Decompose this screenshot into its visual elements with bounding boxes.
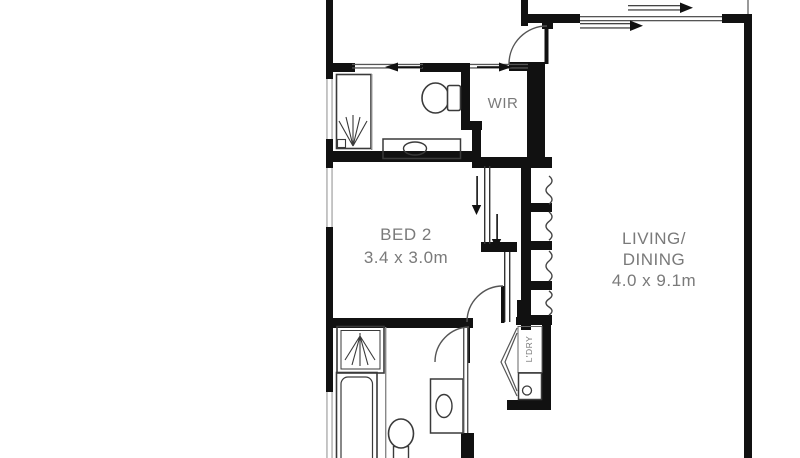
laundry-label: L'DRY — [524, 329, 536, 369]
balcony-slider-icon — [580, 3, 722, 32]
bed2-name: BED 2 — [330, 223, 482, 246]
bathtub-icon — [337, 373, 378, 458]
bathroom2-fixtures — [337, 327, 469, 458]
living-dining-label: LIVING/ DINING 4.0 x 9.1m — [572, 228, 736, 291]
bathroom-slider-icon — [352, 63, 423, 72]
floor-plan: BED 2 3.4 x 3.0m LIVING/ DINING 4.0 x 9.… — [0, 0, 800, 458]
toilet2-icon — [389, 419, 414, 458]
passage-thin-wall — [463, 328, 464, 433]
toilet-icon — [422, 83, 461, 113]
bathroom2-door-icon — [435, 327, 470, 363]
wir-label: WIR — [479, 95, 527, 112]
living-dims: 4.0 x 9.1m — [572, 270, 736, 291]
bathroom1-fixtures — [337, 74, 461, 159]
shower-icon — [337, 75, 372, 149]
shower2-icon — [337, 327, 384, 374]
partition-line — [385, 327, 386, 458]
bed2-door-icon — [467, 286, 505, 323]
laundry-bifold-icon — [501, 328, 517, 396]
living-name-1: LIVING/ — [572, 228, 736, 249]
living-name-2: DINING — [572, 249, 736, 270]
washing-machine-icon — [519, 373, 542, 400]
shower-screen — [371, 74, 372, 150]
bed2-label: BED 2 3.4 x 3.0m — [330, 223, 482, 269]
entry-door-icon — [509, 26, 547, 64]
vanity2-basin-icon — [431, 379, 464, 433]
bed2-dims: 3.4 x 3.0m — [330, 246, 482, 269]
